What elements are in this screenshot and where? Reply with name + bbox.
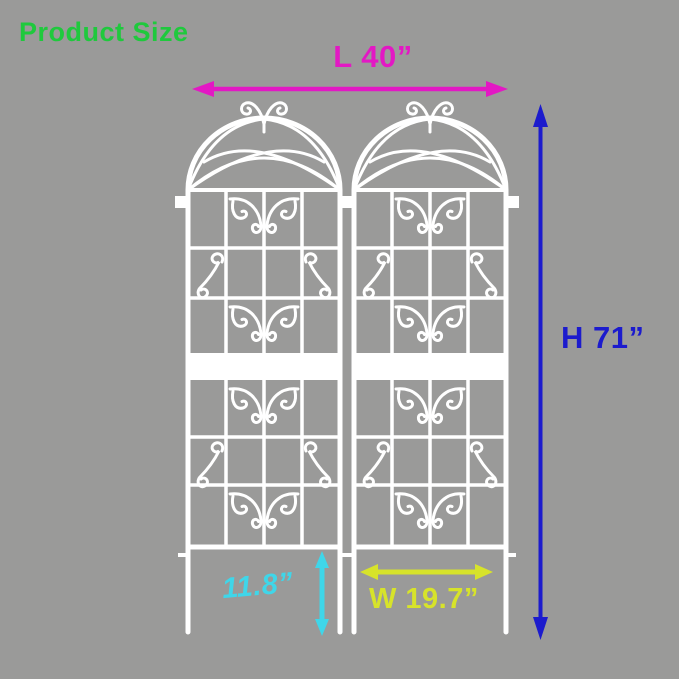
trellis-panel-left <box>175 103 353 632</box>
length-dimension-label: L 40” <box>303 41 443 72</box>
height-dimension-label: H 71” <box>561 322 644 353</box>
height-dimension-arrow <box>533 104 548 640</box>
width-dimension-label: W 19.7” <box>369 585 479 614</box>
stake-dimension-label: 11.8” <box>221 569 295 604</box>
product-size-diagram: Product Size L 40” H 71” 11.8” W 19.7” <box>0 0 679 679</box>
width-dimension-arrow <box>360 564 493 580</box>
trellis-panel-right <box>341 103 519 632</box>
length-dimension-arrow <box>192 81 508 97</box>
page-title: Product Size <box>19 19 189 46</box>
stake-dimension-arrow <box>315 551 329 636</box>
